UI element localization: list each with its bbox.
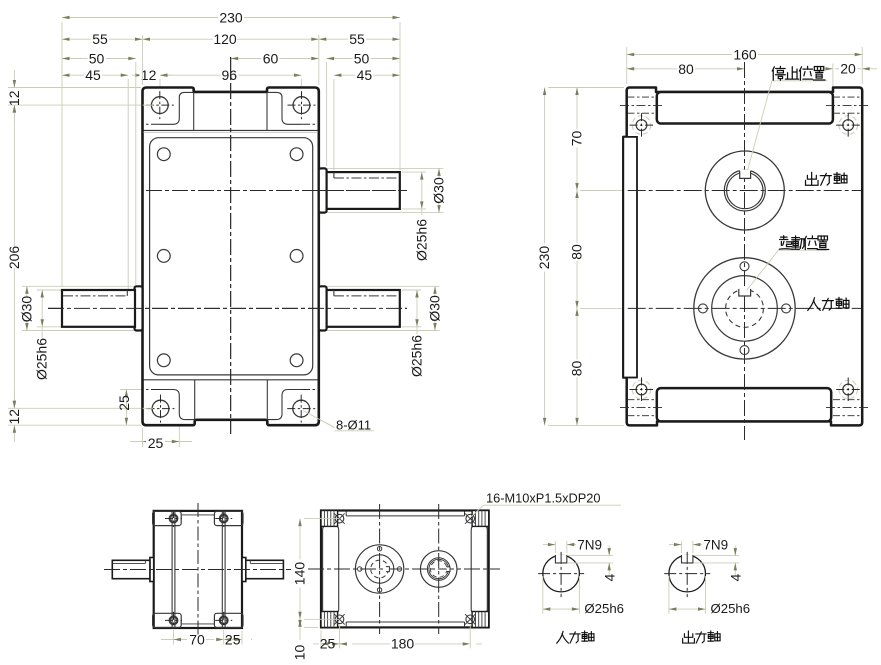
svg-text:96: 96: [222, 67, 238, 83]
svg-text:7N9: 7N9: [577, 537, 602, 552]
svg-text:120: 120: [213, 31, 237, 47]
svg-text:7N9: 7N9: [703, 537, 728, 552]
svg-text:12: 12: [141, 67, 157, 83]
svg-text:25: 25: [320, 636, 336, 652]
svg-text:180: 180: [391, 636, 415, 652]
svg-text:70: 70: [189, 631, 205, 647]
svg-text:12: 12: [6, 90, 22, 106]
svg-text:20: 20: [840, 60, 856, 76]
svg-text:60: 60: [263, 51, 279, 67]
svg-text:25: 25: [116, 395, 132, 411]
svg-text:80: 80: [569, 244, 585, 260]
svg-text:140: 140: [292, 562, 308, 586]
svg-text:10: 10: [292, 645, 308, 661]
svg-text:Ø30: Ø30: [431, 177, 447, 204]
svg-text:45: 45: [85, 67, 101, 83]
svg-text:Ø25h6: Ø25h6: [413, 219, 429, 261]
svg-text:Ø25h6: Ø25h6: [711, 601, 751, 616]
svg-text:206: 206: [6, 246, 22, 270]
svg-text:Ø25h6: Ø25h6: [34, 338, 50, 380]
svg-text:45: 45: [357, 67, 373, 83]
svg-text:70: 70: [569, 131, 585, 147]
svg-text:80: 80: [569, 361, 585, 377]
svg-text:4: 4: [602, 573, 618, 581]
svg-text:55: 55: [349, 31, 365, 47]
svg-text:8-Ø11: 8-Ø11: [336, 417, 371, 432]
svg-text:4: 4: [728, 573, 744, 581]
svg-text:230: 230: [536, 246, 552, 270]
svg-text:50: 50: [354, 51, 370, 67]
svg-text:230: 230: [219, 10, 243, 26]
svg-text:16-M10xP1.5xDP20: 16-M10xP1.5xDP20: [486, 491, 601, 506]
svg-text:55: 55: [92, 31, 108, 47]
svg-text:160: 160: [733, 47, 757, 63]
svg-text:25: 25: [148, 435, 164, 451]
svg-text:Ø25h6: Ø25h6: [409, 335, 425, 377]
svg-text:50: 50: [89, 51, 105, 67]
svg-text:80: 80: [678, 61, 694, 77]
svg-text:Ø30: Ø30: [18, 296, 34, 323]
svg-text:12: 12: [6, 409, 22, 425]
svg-text:25: 25: [225, 631, 241, 647]
svg-text:Ø25h6: Ø25h6: [584, 601, 624, 616]
svg-text:Ø30: Ø30: [427, 295, 443, 322]
